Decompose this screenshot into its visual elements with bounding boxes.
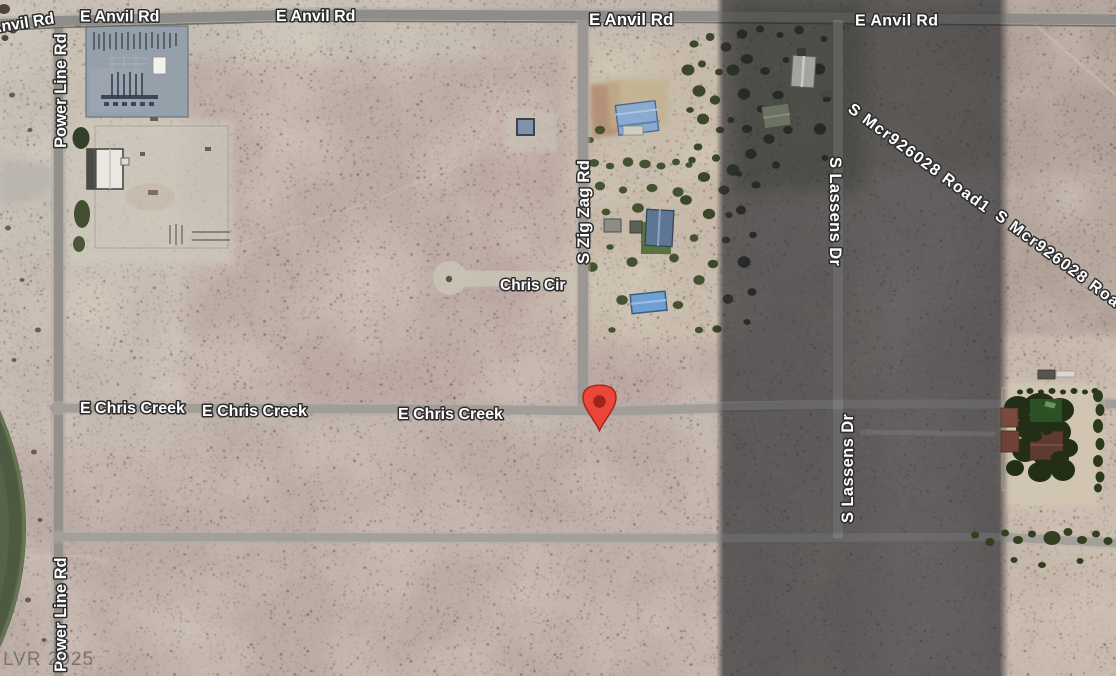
- svg-text:S Lassens Dr: S Lassens Dr: [839, 413, 857, 523]
- svg-text:S Zig Zag Rd: S Zig Zag Rd: [574, 160, 593, 264]
- svg-text:E Chris Creek: E Chris Creek: [202, 403, 307, 420]
- svg-text:E Chris Creek: E Chris Creek: [80, 400, 185, 417]
- svg-text:Chris Cir: Chris Cir: [500, 277, 565, 294]
- svg-text:E Anvil Rd: E Anvil Rd: [855, 13, 938, 30]
- svg-text:Power Line Rd: Power Line Rd: [52, 33, 70, 148]
- svg-text:LVR 2025: LVR 2025: [3, 649, 94, 670]
- svg-text:E Anvil Rd: E Anvil Rd: [276, 8, 355, 25]
- svg-text:E Anvil Rd: E Anvil Rd: [589, 10, 673, 29]
- svg-text:E Anvil Rd: E Anvil Rd: [80, 9, 159, 26]
- svg-text:E Chris Creek: E Chris Creek: [398, 406, 503, 423]
- svg-text:S Lassens Dr: S Lassens Dr: [826, 157, 844, 267]
